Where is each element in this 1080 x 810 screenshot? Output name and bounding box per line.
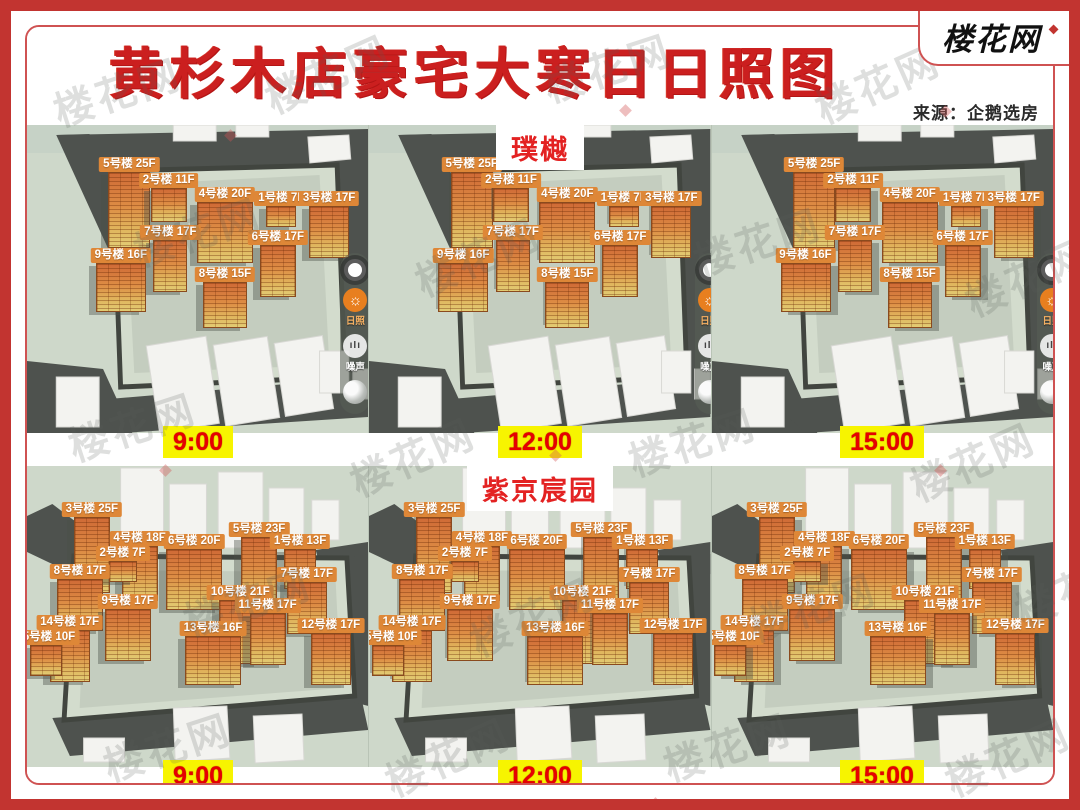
- building-label: 2号楼 11F: [139, 173, 199, 188]
- building-label: 15号楼 10F: [711, 630, 764, 645]
- building-label: 9号楼 17F: [782, 594, 842, 609]
- building-block: [793, 561, 821, 582]
- building-block: [851, 549, 907, 610]
- building-label: 8号楼 15F: [879, 267, 939, 282]
- building-block: [185, 636, 241, 685]
- building-layer: 5号楼 25F2号楼 11F4号楼 20F1号楼 7F3号楼 17F7号楼 17…: [712, 125, 1053, 433]
- building-label: 2号楼 11F: [481, 173, 541, 188]
- sun-icon: ☼: [343, 288, 367, 312]
- building-label: 14号楼 17F: [36, 615, 103, 630]
- time-label: 15:00: [840, 426, 924, 458]
- building-block: [545, 282, 589, 328]
- building-label: 7号楼 17F: [961, 567, 1021, 582]
- logo-text: 楼花网: [942, 14, 1041, 59]
- building-layer: 3号楼 25F5号楼 23F4号楼 18F6号楼 20F1号楼 13F2号楼 7…: [27, 466, 368, 767]
- logo: 楼花网: [918, 8, 1072, 66]
- time-label: 9:00: [163, 760, 233, 785]
- building-label: 13号楼 16F: [864, 621, 931, 636]
- building-block: [509, 549, 565, 610]
- building-label: 4号楼 20F: [195, 187, 255, 202]
- noise-icon: ıIı: [343, 334, 367, 358]
- panel-puyue-1200: 5号楼 25F2号楼 11F4号楼 20F1号楼 7F3号楼 17F7号楼 17…: [368, 125, 710, 433]
- sun-icon: ☼: [698, 288, 711, 312]
- building-block: [592, 613, 628, 665]
- panel-zijing-0900: 3号楼 25F5号楼 23F4号楼 18F6号楼 20F1号楼 13F2号楼 7…: [27, 466, 368, 767]
- sunlight-tool[interactable]: ☼ 日照: [343, 288, 367, 327]
- map-toolbar: ☼ 日照 ıIı 噪声: [340, 253, 368, 414]
- building-block: [888, 282, 932, 328]
- panel-puyue-1500: 5号楼 25F2号楼 11F4号楼 20F1号楼 7F3号楼 17F7号楼 17…: [711, 125, 1053, 433]
- building-label: 8号楼 17F: [50, 564, 110, 579]
- globe-tool[interactable]: [1040, 380, 1053, 404]
- noise-icon: ıIı: [1040, 334, 1053, 358]
- building-block: [714, 645, 746, 676]
- building-block: [372, 645, 404, 676]
- building-label: 7号楼 17F: [482, 225, 542, 240]
- globe-tool[interactable]: [343, 380, 367, 404]
- building-label: 6号楼 17F: [248, 230, 308, 245]
- poster-frame: 黄杉木店豪宅大寒日日照图 来源：企鹅选房: [25, 25, 1055, 785]
- map-toolbar: ☼ 日照 ıIı 噪声: [1037, 253, 1053, 414]
- building-label: 3号楼 25F: [746, 502, 806, 517]
- building-block: [109, 561, 137, 582]
- noise-tool[interactable]: ıIı 噪声: [343, 334, 367, 373]
- row-zijing: 3号楼 25F5号楼 23F4号楼 18F6号楼 20F1号楼 13F2号楼 7…: [27, 466, 1053, 767]
- building-label: 6号楼 17F: [590, 230, 650, 245]
- building-block: [250, 613, 286, 665]
- building-label: 9号楼 16F: [91, 248, 151, 263]
- building-block: [311, 633, 351, 685]
- noise-tool[interactable]: ıIı 噪声: [1040, 334, 1053, 373]
- building-label: 12号楼 17F: [297, 618, 364, 633]
- globe-tool[interactable]: [698, 380, 711, 404]
- building-block: [197, 202, 253, 263]
- building-block: [651, 206, 691, 258]
- logo-seal: [1049, 24, 1059, 34]
- streetview-icon[interactable]: [699, 259, 711, 281]
- building-label: 8号楼 15F: [195, 267, 255, 282]
- building-label: 4号楼 18F: [794, 531, 854, 546]
- building-label: 6号楼 17F: [932, 230, 992, 245]
- building-label: 4号楼 18F: [452, 531, 512, 546]
- globe-icon: [698, 380, 711, 404]
- building-label: 3号楼 25F: [404, 502, 464, 517]
- building-block: [309, 206, 349, 258]
- building-label: 9号楼 16F: [775, 248, 835, 263]
- streetview-icon[interactable]: [1041, 259, 1053, 281]
- globe-icon: [343, 380, 367, 404]
- project-title-zijing: 紫京宸园: [467, 466, 613, 511]
- panel-zijing-1500: 3号楼 25F5号楼 23F4号楼 18F6号楼 20F1号楼 13F2号楼 7…: [711, 466, 1053, 767]
- source-credit: 来源：企鹅选房: [913, 99, 1039, 124]
- building-layer: 3号楼 25F5号楼 23F4号楼 18F6号楼 20F1号楼 13F2号楼 7…: [712, 466, 1053, 767]
- time-label: 12:00: [498, 426, 582, 458]
- building-label: 14号楼 17F: [379, 615, 446, 630]
- building-block: [96, 263, 146, 312]
- building-block: [493, 188, 529, 222]
- building-label: 12号楼 17F: [982, 618, 1049, 633]
- building-layer: 5号楼 25F2号楼 11F4号楼 20F1号楼 7F3号楼 17F7号楼 17…: [369, 125, 710, 433]
- building-block: [789, 609, 835, 661]
- building-block: [151, 188, 187, 222]
- building-block: [153, 240, 187, 292]
- building-block: [609, 206, 639, 227]
- noise-tool[interactable]: ıIı 噪声: [698, 334, 711, 373]
- building-label: 3号楼 17F: [299, 191, 359, 206]
- building-block: [527, 636, 583, 685]
- building-label: 3号楼 17F: [984, 191, 1044, 206]
- building-label: 3号楼 17F: [641, 191, 701, 206]
- building-label: 2号楼 11F: [823, 173, 883, 188]
- time-band-top: 9:00 12:00 15:00: [27, 433, 1053, 466]
- building-label: 8号楼 15F: [537, 267, 597, 282]
- building-block: [451, 561, 479, 582]
- sunlight-tool[interactable]: ☼ 日照: [1040, 288, 1053, 327]
- building-block: [934, 613, 970, 665]
- building-label: 2号楼 7F: [780, 546, 834, 561]
- building-label: 13号楼 16F: [522, 621, 589, 636]
- building-label: 7号楼 17F: [277, 567, 337, 582]
- building-label: 7号楼 17F: [619, 567, 679, 582]
- building-label: 1号楼 13F: [612, 534, 672, 549]
- building-label: 5号楼 25F: [784, 157, 844, 172]
- building-block: [447, 609, 493, 661]
- building-block: [882, 202, 938, 263]
- building-label: 1号楼 13F: [955, 534, 1015, 549]
- building-layer: 5号楼 25F2号楼 11F4号楼 20F1号楼 7F3号楼 17F7号楼 17…: [27, 125, 368, 433]
- noise-icon: ıIı: [698, 334, 711, 358]
- time-label: 12:00: [498, 760, 582, 785]
- building-block: [266, 206, 296, 227]
- building-block: [653, 633, 693, 685]
- building-block: [203, 282, 247, 328]
- building-label: 6号楼 20F: [849, 534, 909, 549]
- building-block: [838, 240, 872, 292]
- building-block: [30, 645, 62, 676]
- page-title: 黄杉木店豪宅大寒日日照图: [82, 29, 868, 109]
- building-block: [602, 245, 638, 297]
- panel-zijing-1200: 3号楼 25F5号楼 23F4号楼 18F6号楼 20F1号楼 13F2号楼 7…: [368, 466, 710, 767]
- building-label: 6号楼 20F: [164, 534, 224, 549]
- building-label: 1号楼 13F: [270, 534, 330, 549]
- building-label: 4号楼 20F: [537, 187, 597, 202]
- row-puyue: 5号楼 25F2号楼 11F4号楼 20F1号楼 7F3号楼 17F7号楼 17…: [27, 125, 1053, 433]
- building-label: 5号楼 25F: [99, 157, 159, 172]
- building-block: [995, 633, 1035, 685]
- sunlight-tool[interactable]: ☼ 日照: [698, 288, 711, 327]
- building-label: 15号楼 10F: [27, 630, 79, 645]
- building-label: 11号楼 17F: [577, 598, 643, 613]
- building-block: [870, 636, 926, 685]
- building-block: [835, 188, 871, 222]
- building-label: 5号楼 25F: [442, 157, 502, 172]
- building-label: 7号楼 17F: [825, 225, 885, 240]
- building-label: 4号楼 20F: [879, 187, 939, 202]
- building-label: 9号楼 17F: [440, 594, 500, 609]
- building-label: 11号楼 17F: [919, 598, 985, 613]
- streetview-icon[interactable]: [344, 259, 366, 281]
- building-block: [951, 206, 981, 227]
- building-label: 15号楼 10F: [368, 630, 421, 645]
- building-label: 2号楼 7F: [96, 546, 150, 561]
- building-block: [496, 240, 530, 292]
- map-toolbar: ☼ 日照 ıIı 噪声: [695, 253, 711, 414]
- building-label: 8号楼 17F: [734, 564, 794, 579]
- building-label: 9号楼 17F: [97, 594, 157, 609]
- watermark-dot: [649, 797, 662, 810]
- time-band-bottom: 9:00 12:00 15:00: [27, 767, 1053, 785]
- building-label: 9号楼 16F: [433, 248, 493, 263]
- globe-icon: [1040, 380, 1053, 404]
- building-label: 7号楼 17F: [140, 225, 200, 240]
- watermark-dot: [239, 799, 252, 810]
- building-label: 11号楼 17F: [235, 598, 301, 613]
- building-block: [105, 609, 151, 661]
- building-label: 8号楼 17F: [392, 564, 452, 579]
- building-block: [945, 245, 981, 297]
- time-label: 9:00: [163, 426, 233, 458]
- header: 黄杉木店豪宅大寒日日照图 来源：企鹅选房: [27, 27, 1053, 125]
- building-block: [994, 206, 1034, 258]
- building-block: [781, 263, 831, 312]
- project-title-puyue: 璞樾: [496, 125, 584, 170]
- building-label: 14号楼 17F: [721, 615, 788, 630]
- building-label: 12号楼 17F: [640, 618, 707, 633]
- building-label: 6号楼 20F: [506, 534, 566, 549]
- building-label: 4号楼 18F: [109, 531, 169, 546]
- building-block: [166, 549, 222, 610]
- building-layer: 3号楼 25F5号楼 23F4号楼 18F6号楼 20F1号楼 13F2号楼 7…: [369, 466, 710, 767]
- building-label: 3号楼 25F: [62, 502, 122, 517]
- building-block: [260, 245, 296, 297]
- poster: 楼花网 黄杉木店豪宅大寒日日照图 来源：企鹅选房: [0, 0, 1080, 810]
- panel-puyue-0900: 5号楼 25F2号楼 11F4号楼 20F1号楼 7F3号楼 17F7号楼 17…: [27, 125, 368, 433]
- building-label: 2号楼 7F: [438, 546, 492, 561]
- building-block: [539, 202, 595, 263]
- building-block: [438, 263, 488, 312]
- building-label: 13号楼 16F: [180, 621, 247, 636]
- time-label: 15:00: [840, 760, 924, 785]
- sun-icon: ☼: [1040, 288, 1053, 312]
